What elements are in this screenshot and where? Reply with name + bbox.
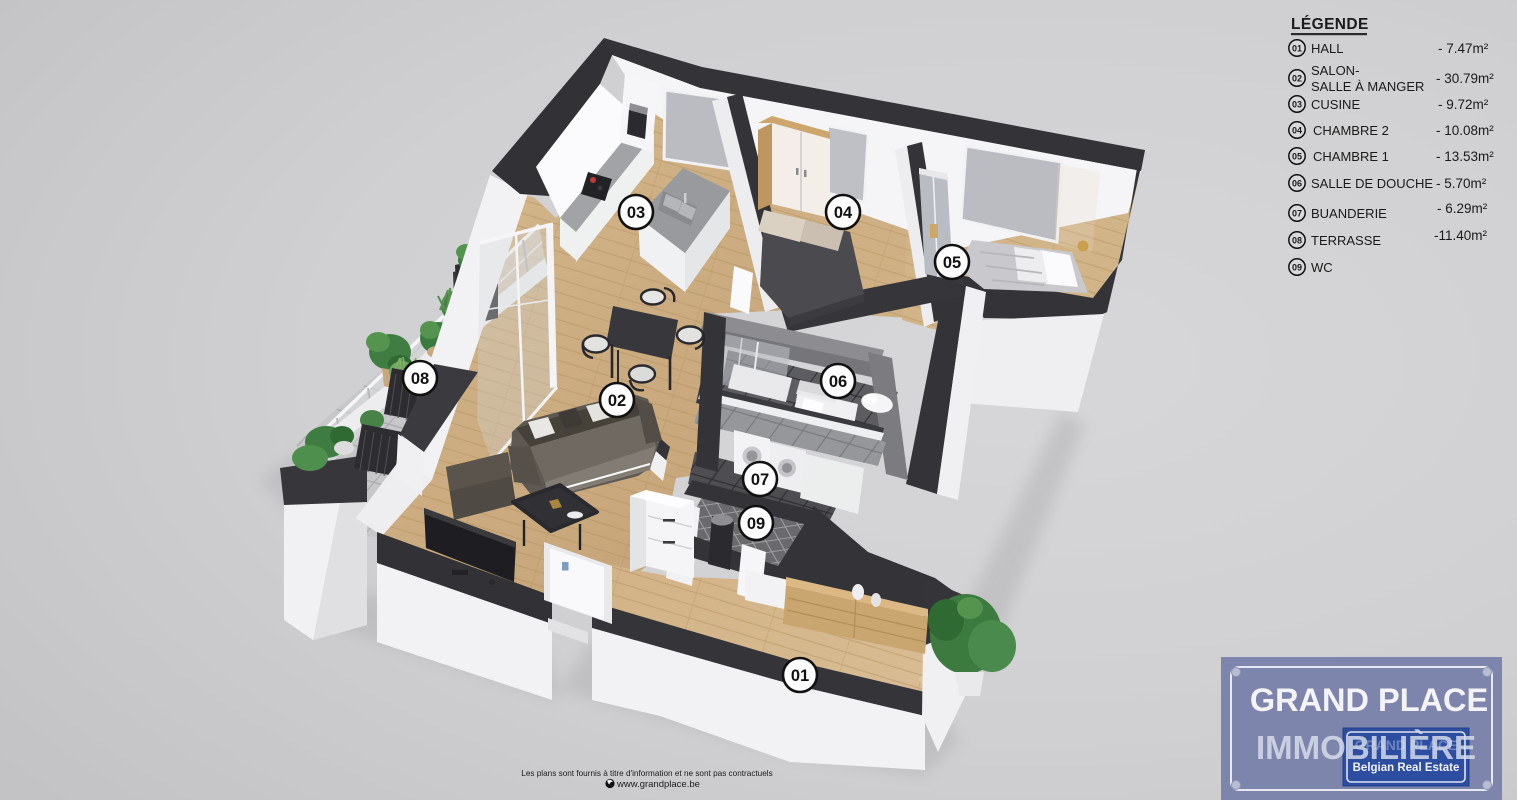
svg-text:01: 01 xyxy=(1292,43,1302,53)
svg-text:GRAND PLACE: GRAND PLACE xyxy=(1250,682,1488,718)
svg-text:www.grandplace.be: www.grandplace.be xyxy=(616,779,700,790)
svg-text:02: 02 xyxy=(608,392,626,410)
svg-text:07: 07 xyxy=(751,471,769,489)
svg-text:HALL: HALL xyxy=(1311,41,1344,56)
svg-text:TERRASSE: TERRASSE xyxy=(1311,233,1381,248)
svg-text:01: 01 xyxy=(791,667,809,685)
svg-text:09: 09 xyxy=(1292,262,1302,272)
svg-text:- 10.08m²: - 10.08m² xyxy=(1436,123,1494,138)
svg-text:Les plans sont fournis à titre: Les plans sont fournis à titre d'informa… xyxy=(521,769,772,778)
svg-text:- 7.47m²: - 7.47m² xyxy=(1438,41,1489,56)
svg-text:05: 05 xyxy=(943,254,961,272)
svg-text:- 9.72m²: - 9.72m² xyxy=(1438,97,1489,112)
svg-text:- 5.70m²: - 5.70m² xyxy=(1436,176,1487,191)
svg-text:WC: WC xyxy=(1311,260,1333,275)
svg-text:09: 09 xyxy=(747,515,765,533)
svg-text:SALLE DE DOUCHE: SALLE DE DOUCHE xyxy=(1311,176,1433,191)
svg-text:08: 08 xyxy=(1292,235,1302,245)
svg-text:05: 05 xyxy=(1292,151,1302,161)
svg-text:CUSINE: CUSINE xyxy=(1311,97,1360,112)
svg-text:04: 04 xyxy=(1292,125,1302,135)
svg-text:- 13.53m²: - 13.53m² xyxy=(1436,149,1494,164)
svg-text:06: 06 xyxy=(1292,178,1302,188)
svg-text:SALLE À MANGER: SALLE À MANGER xyxy=(1311,79,1424,94)
svg-text:03: 03 xyxy=(1292,99,1302,109)
svg-text:LÉGENDE: LÉGENDE xyxy=(1291,16,1369,33)
svg-text:08: 08 xyxy=(411,370,429,388)
svg-text:- 30.79m²: - 30.79m² xyxy=(1436,71,1494,86)
svg-text:BUANDERIE: BUANDERIE xyxy=(1311,206,1387,221)
svg-text:-11.40m²: -11.40m² xyxy=(1434,228,1488,243)
svg-text:- 6.29m²: - 6.29m² xyxy=(1437,201,1488,216)
svg-text:IMMOBILIÈRE: IMMOBILIÈRE xyxy=(1256,729,1476,766)
svg-text:CHAMBRE 2: CHAMBRE 2 xyxy=(1313,123,1389,138)
svg-text:06: 06 xyxy=(829,373,847,391)
svg-text:SALON-: SALON- xyxy=(1311,63,1359,78)
svg-text:03: 03 xyxy=(627,204,645,222)
svg-text:02: 02 xyxy=(1292,73,1302,83)
svg-text:04: 04 xyxy=(834,204,853,222)
svg-text:CHAMBRE 1: CHAMBRE 1 xyxy=(1313,149,1389,164)
svg-text:07: 07 xyxy=(1292,208,1302,218)
